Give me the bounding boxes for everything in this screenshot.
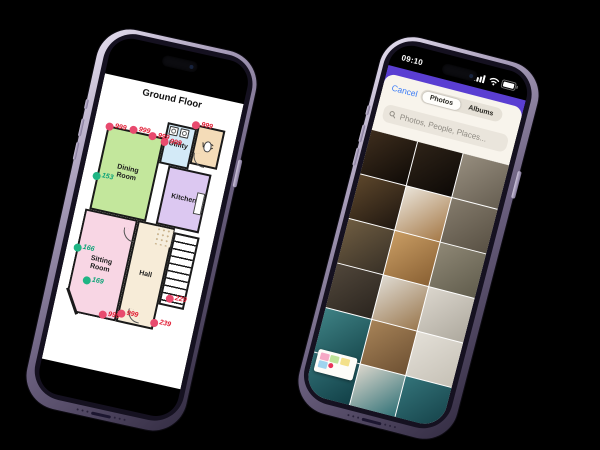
floorplan-screen: Ground Floor UtilityWCKitchenDining Room… — [35, 34, 252, 420]
front-camera-icon — [469, 73, 474, 78]
cancel-button[interactable]: Cancel — [391, 83, 419, 99]
tab-photos[interactable]: Photos — [421, 90, 462, 111]
volume-up-button[interactable] — [77, 118, 84, 136]
dynamic-island — [161, 55, 199, 74]
thumbnail-block — [328, 363, 334, 369]
thumbnail-block — [317, 360, 327, 369]
dryer-icon — [179, 128, 190, 139]
front-camera-icon — [189, 64, 194, 69]
photos-phone: 09:10 — [291, 30, 546, 446]
search-icon — [388, 110, 397, 120]
thumbnail-block — [340, 357, 350, 366]
mute-switch[interactable] — [83, 99, 89, 110]
volume-down-button[interactable] — [72, 142, 79, 160]
phone-body: 09:10 — [297, 35, 538, 435]
photos-screen: 09:10 — [303, 41, 532, 429]
phone-body: Ground Floor UtilityWCKitchenDining Room… — [29, 28, 258, 426]
room-label: Sitting Room — [82, 253, 119, 276]
room-label: Hall — [128, 267, 163, 282]
floorplan-title: Ground Floor — [102, 78, 243, 119]
tab-albums[interactable]: Albums — [459, 100, 502, 121]
floorplan-phone: Ground Floor UtilityWCKitchenDining Room… — [20, 23, 263, 437]
photo-grid — [303, 130, 509, 429]
power-button[interactable] — [511, 171, 521, 199]
thumbnail-block — [319, 352, 329, 361]
measurement-marker[interactable]: 239 — [149, 318, 159, 328]
battery-icon — [500, 78, 519, 91]
wifi-icon — [487, 75, 500, 86]
marker-label: 239 — [159, 319, 172, 328]
floorplan-canvas: Ground Floor UtilityWCKitchenDining Room… — [42, 73, 244, 389]
thumbnail-block — [329, 354, 339, 363]
room-label: Dining Room — [109, 162, 146, 185]
scene: Ground Floor UtilityWCKitchenDining Room… — [0, 0, 600, 450]
clock: 09:10 — [401, 53, 425, 67]
wc-door-arc — [191, 153, 207, 169]
